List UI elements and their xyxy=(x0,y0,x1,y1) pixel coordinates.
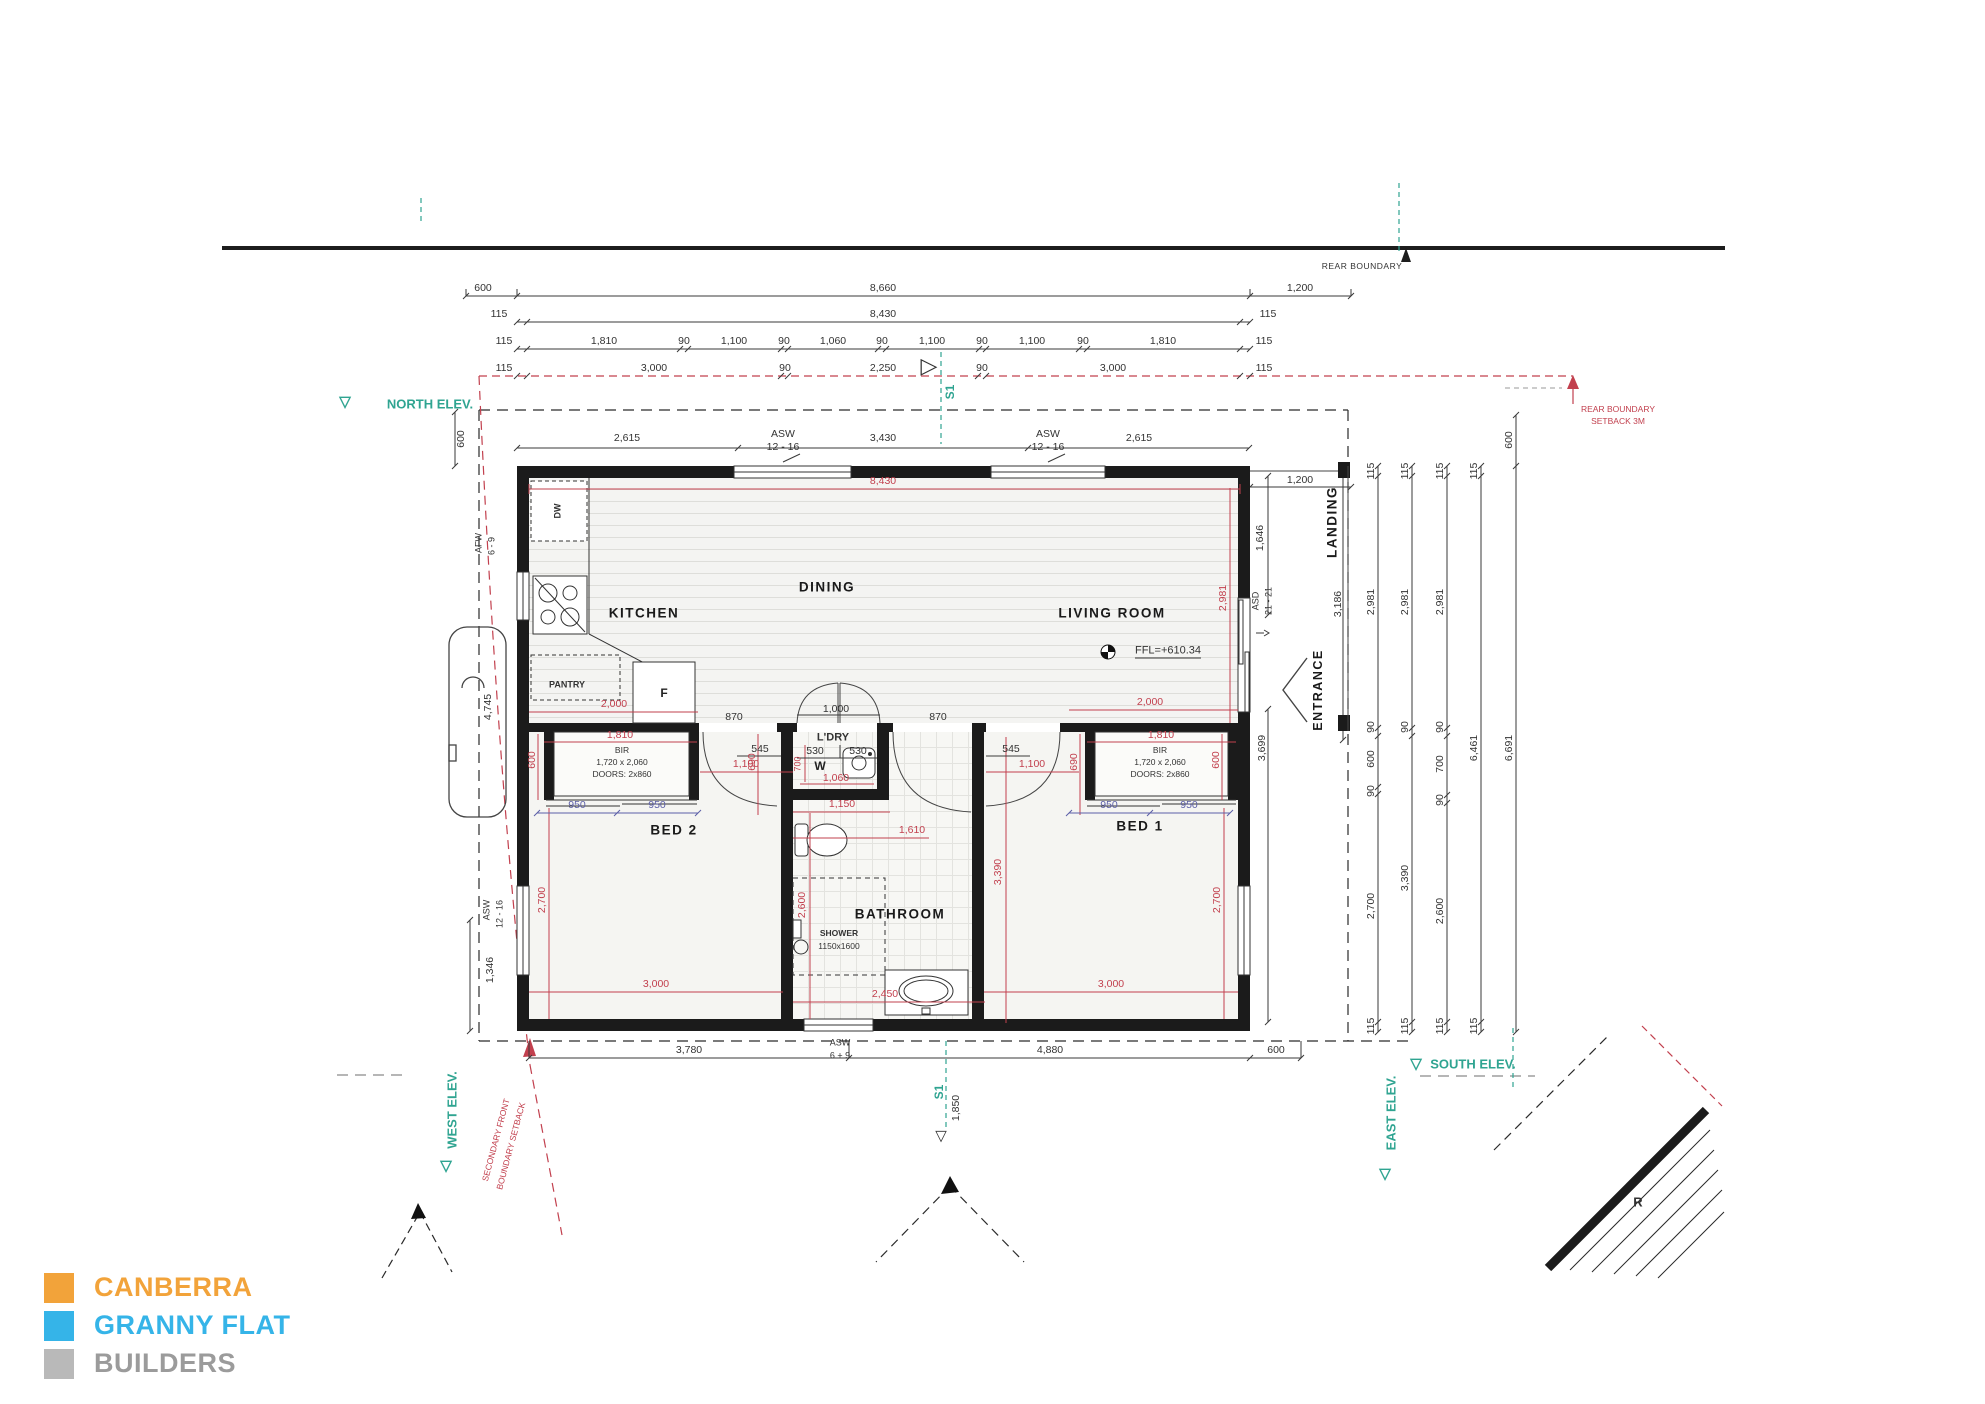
dim-label: 870 xyxy=(929,712,947,723)
fridge-label: F xyxy=(660,687,667,699)
dim-label: 90 xyxy=(779,363,791,374)
logo-text-builders: BUILDERS xyxy=(94,1348,236,1379)
dim-label: 115 xyxy=(1366,463,1377,480)
dim-label: 950 xyxy=(568,800,586,811)
caravan-outline xyxy=(449,627,506,817)
dim-label: 115 xyxy=(1469,1018,1480,1035)
dim-label: 3,780 xyxy=(676,1045,702,1056)
dim-label: 2,250 xyxy=(870,363,896,374)
dim-label: 1,000 xyxy=(823,704,849,715)
logo-row-3: BUILDERS xyxy=(44,1348,236,1379)
blue-dimension-lines xyxy=(534,810,1233,816)
dim-label: 2,000 xyxy=(1137,697,1163,708)
dim-label: 90 xyxy=(976,363,988,374)
dim-label: 8,430 xyxy=(870,309,896,320)
bir-size-label: 1,720 x 2,060 xyxy=(1134,758,1186,767)
dim-label: 90 xyxy=(976,336,988,347)
dim-label: 2,615 xyxy=(1126,433,1152,444)
plan-fragment-label: R xyxy=(1633,1196,1642,1209)
room-label-entrance: ENTRANCE xyxy=(1312,649,1325,730)
dim-label: 8,430 xyxy=(870,476,896,487)
dim-label: 2,981 xyxy=(1218,585,1229,611)
dim-label: 700 xyxy=(794,756,803,771)
window-label: ASW xyxy=(483,900,492,921)
dim-label: 90 xyxy=(1366,721,1377,733)
elevation-marker-icon: ▽ xyxy=(1410,1057,1422,1072)
section-label-s1: S1 xyxy=(944,385,956,400)
south-elevation-label: SOUTH ELEV. xyxy=(1430,1058,1515,1071)
dim-label: 2,700 xyxy=(537,887,548,913)
section-marker-icon: ▽ xyxy=(935,1129,947,1144)
dim-label: 4,880 xyxy=(1037,1045,1063,1056)
dim-label: 690 xyxy=(1069,753,1080,771)
window-label: 6 - 9 xyxy=(488,537,497,555)
dim-label: 3,000 xyxy=(641,363,667,374)
dim-label: 90 xyxy=(678,336,690,347)
dim-label: 600 xyxy=(1504,431,1515,449)
dim-label: 2,450 xyxy=(872,989,898,1000)
dim-label: 115 xyxy=(1435,463,1446,480)
dim-label: 115 xyxy=(1260,309,1277,320)
dim-label: 2,600 xyxy=(797,892,808,918)
dim-label: 3,430 xyxy=(870,433,896,444)
dim-label: 3,699 xyxy=(1257,735,1268,761)
dim-label: 2,981 xyxy=(1366,589,1377,615)
floorplan-linework xyxy=(0,0,1985,1404)
elevation-marker-icon: ▽ xyxy=(1379,1167,1391,1182)
shower-label: SHOWER xyxy=(820,929,858,938)
dim-label: 2,700 xyxy=(1212,887,1223,913)
door-label-asd-size: 21 - 21 xyxy=(1265,587,1274,615)
window-label: ASW xyxy=(830,1039,851,1048)
logo-square-orange xyxy=(44,1273,74,1303)
elevation-marker-icon: ▽ xyxy=(339,395,351,410)
logo-text-grannyflat: GRANNY FLAT xyxy=(94,1310,291,1341)
room-label-bed1: BED 1 xyxy=(1116,819,1163,833)
east-elevation-label: EAST ELEV. xyxy=(1385,1076,1398,1151)
dim-label: 870 xyxy=(725,712,743,723)
dim-label: 1,810 xyxy=(1150,336,1176,347)
dim-label: 90 xyxy=(1400,721,1411,733)
window-label: 12 - 16 xyxy=(1032,442,1065,453)
dim-label: 1,100 xyxy=(1019,336,1045,347)
bir-label: BIR xyxy=(1153,746,1167,755)
dim-label: 1,200 xyxy=(1287,475,1313,486)
dim-label: 115 xyxy=(1435,1018,1446,1035)
dim-label: 115 xyxy=(1400,463,1411,480)
rear-boundary-line xyxy=(222,248,1725,262)
dim-label: 1,810 xyxy=(591,336,617,347)
room-label-living: LIVING ROOM xyxy=(1058,606,1165,620)
dim-label: 90 xyxy=(1435,721,1446,733)
dim-label: 1,646 xyxy=(1255,525,1266,551)
dim-label: 1,100 xyxy=(919,336,945,347)
dim-label: 3,000 xyxy=(1100,363,1126,374)
dim-label: 2,981 xyxy=(1400,589,1411,615)
setback-label: REAR BOUNDARY xyxy=(1581,405,1655,414)
bottom-dimension-line xyxy=(526,1041,1304,1061)
dim-label: 115 xyxy=(1469,463,1480,480)
room-label-pantry: PANTRY xyxy=(549,681,585,690)
dim-label: 115 xyxy=(1256,363,1273,374)
dim-label: 1,810 xyxy=(1148,730,1174,741)
dim-label: 600 xyxy=(1211,751,1222,769)
window-label: 12 - 16 xyxy=(767,442,800,453)
dim-label: 2,700 xyxy=(1366,893,1377,919)
dim-label: 600 xyxy=(1366,750,1377,768)
dim-label: 1,100 xyxy=(1019,759,1045,770)
dim-label: 1,810 xyxy=(607,730,633,741)
west-elevation-label: WEST ELEV. xyxy=(446,1071,459,1149)
dim-label: 3,000 xyxy=(1098,979,1124,990)
dim-label: 90 xyxy=(876,336,888,347)
dim-label: 950 xyxy=(648,800,666,811)
dim-label: 6,461 xyxy=(1469,735,1480,761)
logo-text-canberra: CANBERRA xyxy=(94,1272,253,1303)
dim-label: 2,615 xyxy=(614,433,640,444)
washer-label: W xyxy=(814,760,825,772)
bir-label: BIR xyxy=(615,746,629,755)
logo-row-1: CANBERRA xyxy=(44,1272,253,1303)
logo-row-2: GRANNY FLAT xyxy=(44,1310,291,1341)
room-label-ldry: L'DRY xyxy=(817,733,849,744)
bir-doors-label: DOORS: 2x860 xyxy=(1130,770,1189,779)
door-label-asd: ASD xyxy=(1252,592,1261,611)
shower-size-label: 1150x1600 xyxy=(818,942,859,951)
dim-label: 2,000 xyxy=(601,699,627,710)
dim-label: 530 xyxy=(806,746,824,757)
dim-label: 1,060 xyxy=(820,336,846,347)
floor-plan-sheet: REAR BOUNDARY REAR BOUNDARY SETBACK 3M S… xyxy=(0,0,1985,1404)
dim-label: 2,981 xyxy=(1435,589,1446,615)
dim-label: 115 xyxy=(491,309,508,320)
window-label: ASW xyxy=(1036,429,1060,440)
rear-boundary-label: REAR BOUNDARY xyxy=(1322,262,1403,271)
level-marker-icon xyxy=(1101,645,1115,659)
dim-label: 1,850 xyxy=(951,1095,962,1121)
dim-label: 115 xyxy=(496,363,513,374)
dim-label: 90 xyxy=(778,336,790,347)
dim-label: 115 xyxy=(1366,1018,1377,1035)
room-label-bathroom: BATHROOM xyxy=(855,907,946,921)
dim-label: 600 xyxy=(474,283,492,294)
dishwasher-label: DW xyxy=(554,504,563,519)
room-label-landing: LANDING xyxy=(1325,486,1339,558)
dim-label: 1,100 xyxy=(721,336,747,347)
dim-label: 700 xyxy=(1435,755,1446,773)
site-fragments xyxy=(382,1034,1724,1278)
dim-label: 3,390 xyxy=(1400,865,1411,891)
window-label: 12 - 16 xyxy=(496,900,505,928)
room-label-kitchen: KITCHEN xyxy=(609,606,680,620)
dim-label: 3,186 xyxy=(1333,591,1344,617)
dim-label: 1,100 xyxy=(733,759,759,770)
bir-doors-label: DOORS: 2x860 xyxy=(592,770,651,779)
dim-label: 8,660 xyxy=(870,283,896,294)
dim-label: 1,060 xyxy=(823,773,849,784)
logo-square-gray xyxy=(44,1349,74,1379)
section-label-s1: S1 xyxy=(933,1085,945,1100)
window-label: AFW xyxy=(475,533,484,553)
dim-label: 90 xyxy=(1077,336,1089,347)
dim-label: 1,346 xyxy=(485,957,496,983)
dim-label: 950 xyxy=(1100,800,1118,811)
setback-label: SETBACK 3M xyxy=(1591,417,1645,426)
dim-label: 530 xyxy=(849,746,867,757)
dim-label: 4,745 xyxy=(483,694,494,720)
dim-label: 1,200 xyxy=(1287,283,1313,294)
right-dimension-columns xyxy=(1375,388,1562,1035)
dim-label: 1,150 xyxy=(829,799,855,810)
elevation-marker-icon: ▽ xyxy=(440,1159,452,1174)
logo-square-cyan xyxy=(44,1311,74,1341)
dim-label: 6,691 xyxy=(1504,735,1515,761)
dim-label: 115 xyxy=(496,336,513,347)
room-label-bed2: BED 2 xyxy=(650,823,697,837)
north-elevation-label: NORTH ELEV. xyxy=(387,398,473,411)
dim-label: 545 xyxy=(1002,744,1020,755)
dim-label: 950 xyxy=(1180,800,1198,811)
dim-label: 1,610 xyxy=(899,825,925,836)
bir-size-label: 1,720 x 2,060 xyxy=(596,758,648,767)
dim-label: 2,600 xyxy=(1435,898,1446,924)
ffl-label: FFL=+610.34 xyxy=(1135,646,1201,659)
dim-label: 600 xyxy=(527,751,538,769)
dim-label: 90 xyxy=(1366,785,1377,797)
room-label-dining: DINING xyxy=(799,580,855,594)
dim-label: 600 xyxy=(1267,1045,1285,1056)
dim-label: 90 xyxy=(1435,794,1446,806)
dim-label: 3,390 xyxy=(993,859,1004,885)
dim-label: 115 xyxy=(1256,336,1273,347)
dim-label: 115 xyxy=(1400,1018,1411,1035)
window-label: ASW xyxy=(771,429,795,440)
window-label: 6 + 9 xyxy=(830,1052,850,1061)
dim-label: 3,000 xyxy=(643,979,669,990)
section-marker-icon: ▷ xyxy=(921,355,938,377)
dim-label: 600 xyxy=(456,430,467,448)
